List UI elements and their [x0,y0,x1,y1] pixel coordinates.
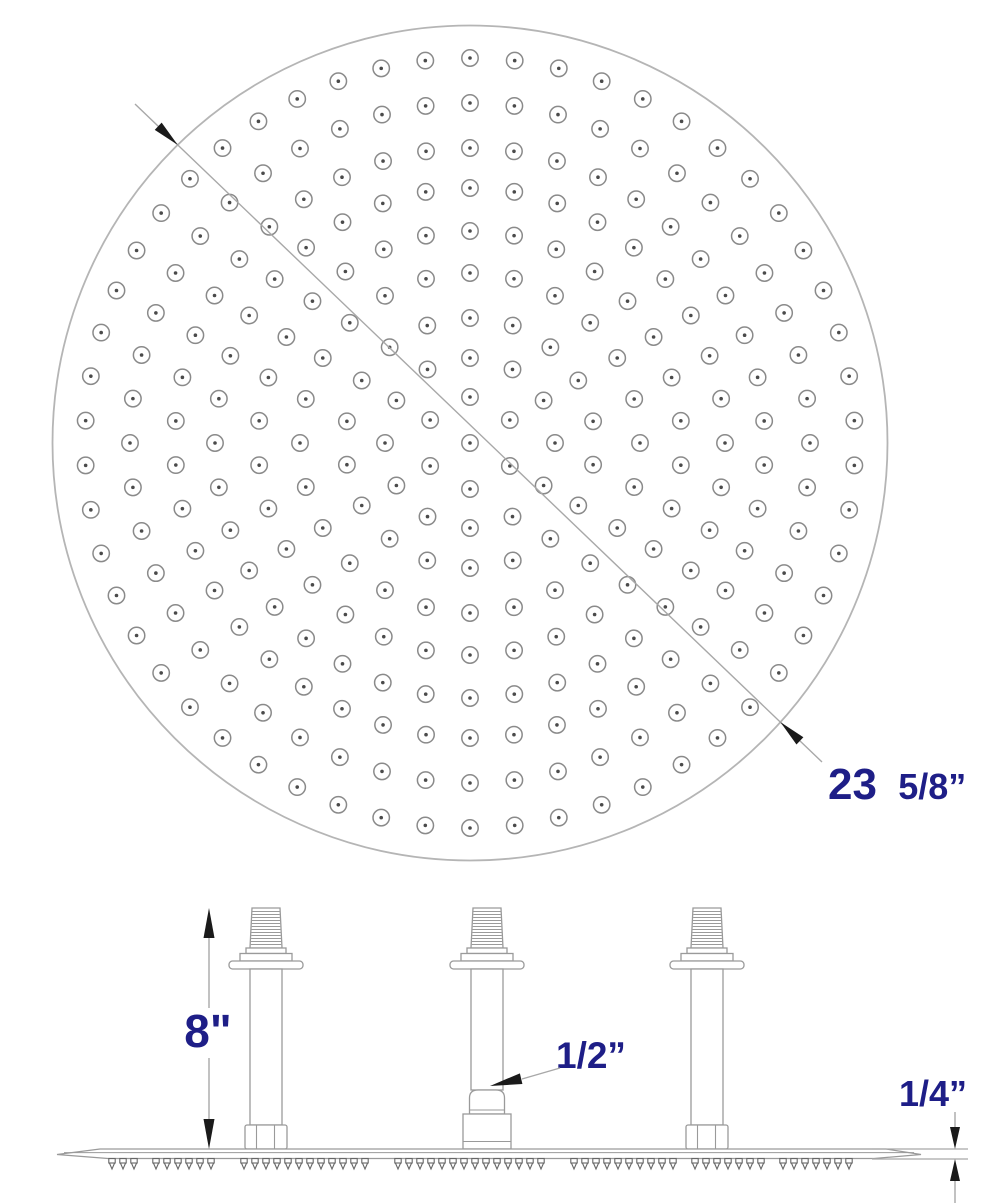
tooth-body [472,1159,478,1164]
nozzle-center-dot [553,588,557,592]
nozzle-center-dot [708,528,712,532]
tooth-body [703,1159,709,1164]
tooth-body [758,1159,764,1164]
tooth-tip [747,1163,752,1169]
nozzle-center-dot [468,101,472,105]
diagram-canvas: 23 5/8” 8" 1/2” 1/4” [0,0,1000,1203]
nozzle-center-dot [596,220,600,224]
nozzle-center-dot [383,588,387,592]
nozzle-center-dot [424,692,428,696]
tooth-tip [164,1163,169,1169]
tooth-body [813,1159,819,1164]
nozzle-center-dot [181,507,185,511]
tooth-tip [758,1163,763,1169]
nozzle-center-dot [426,368,430,372]
nozzle-center-dot [360,379,364,383]
tooth-body [736,1159,742,1164]
nozzle-center-dot [638,147,642,151]
tooth-body [263,1159,269,1164]
nozzle-center-dot [719,485,723,489]
nozzle-center-dot [304,397,308,401]
nozzle-center-dot [762,419,766,423]
tooth-tip [461,1163,466,1169]
tooth-body [329,1159,335,1164]
nozzle-center-dot [154,311,158,315]
tooth-tip [615,1163,620,1169]
tooth-tip [582,1163,587,1169]
tooth-tip [571,1163,576,1169]
nozzle-center-dot [154,571,158,575]
shower-head-face-view: 23 5/8” [53,26,967,861]
nozzle-teeth-row [109,1159,852,1170]
height-arrow-down [204,1119,215,1149]
nozzle-center-dot [140,353,144,357]
nozzle-center-dot [468,487,472,491]
nozzle-center-dot [348,561,352,565]
tooth-body [604,1159,610,1164]
nozzle-center-dot [424,104,428,108]
nozzle-center-dot [638,736,642,740]
nozzle-center-dot [345,419,349,423]
tooth-body [285,1159,291,1164]
tooth-tip [538,1163,543,1169]
nozzle-center-dot [512,692,516,696]
nozzle-center-dot [247,569,251,573]
nozzle-center-dot [679,419,683,423]
tooth-tip [494,1163,499,1169]
tooth-body [802,1159,808,1164]
threaded-nipple [691,908,723,948]
tooth-body [494,1159,500,1164]
diameter-fraction: 5/8” [898,766,966,807]
nozzle-center-dot [468,229,472,233]
nozzle-center-dot [670,507,674,511]
nozzle-center-dot [273,605,277,609]
nozzle-center-dot [135,634,139,638]
nozzle-center-dot [576,504,580,508]
nozzle-center-dot [425,559,429,563]
nozzle-center-dot [89,508,93,512]
tooth-tip [736,1163,741,1169]
nozzle-center-dot [512,733,516,737]
tooth-tip [835,1163,840,1169]
tooth-body [615,1159,621,1164]
nozzle-center-dot [555,159,559,163]
nozzle-center-dot [756,507,760,511]
nozzle-center-dot [228,682,232,686]
tooth-body [780,1159,786,1164]
tooth-body [406,1159,412,1164]
shower-head-side-profile: 8" 1/2” 1/4” [57,908,968,1203]
nozzle-center-dot [853,464,857,468]
nozzle-center-dot [221,736,225,740]
nozzle-center-dot [680,120,684,124]
tooth-tip [362,1163,367,1169]
collar-step-1 [687,948,727,954]
tooth-tip [527,1163,532,1169]
tooth-tip [406,1163,411,1169]
nozzle-center-dot [626,583,630,587]
nozzle-center-dot [424,733,428,737]
nozzle-center-dot [632,397,636,401]
tooth-body [439,1159,445,1164]
nozzle-center-dot [468,271,472,275]
mounting-pipes [229,908,744,1149]
nozzle-center-dot [295,97,299,101]
nozzle-center-dot [298,441,302,445]
nozzle-center-dot [424,824,428,828]
tooth-body [516,1159,522,1164]
tooth-tip [824,1163,829,1169]
nozzle-center-dot [837,552,841,556]
nozzle-center-dot [424,649,428,653]
tooth-body [450,1159,456,1164]
nozzle-center-dot [348,321,352,325]
tooth-tip [351,1163,356,1169]
nozzle-center-dot [344,270,348,274]
tooth-tip [439,1163,444,1169]
nozzle-center-dot [596,662,600,666]
nozzle-center-dot [321,356,325,360]
nozzle-center-dot [213,294,217,298]
tooth-body [483,1159,489,1164]
nozzle-center-dot [338,755,342,759]
nozzle-center-dot [257,120,261,124]
tooth-tip [131,1163,136,1169]
nozzle-center-dot [512,649,516,653]
nozzle-center-dot [428,418,432,422]
diameter-whole: 23 [828,760,877,809]
nozzle-center-dot [512,605,516,609]
tooth-body [307,1159,313,1164]
nozzle-center-dot [381,202,385,206]
nozzle-center-dot [268,657,272,661]
tooth-body [538,1159,544,1164]
nozzle-center-dot [302,685,306,689]
nozzle-center-dot [285,547,289,551]
nozzle-center-dot [596,707,600,711]
nozzle-center-dot [600,79,604,83]
tooth-tip [593,1163,598,1169]
tooth-body [648,1159,654,1164]
nozzle-center-dot [425,324,429,328]
nozzle-center-dot [708,354,712,358]
nozzle-center-dot [593,613,597,617]
tooth-body [241,1159,247,1164]
nozzle-center-dot [802,634,806,638]
nozzle-center-dot [468,356,472,360]
nozzle-center-dot [247,314,251,318]
tooth-body [505,1159,511,1164]
nozzle-center-dot [511,559,515,563]
nozzle-center-dot [174,611,178,615]
nozzle-center-dot [556,770,560,774]
nozzle-center-dot [782,311,786,315]
nozzle-center-dot [295,785,299,789]
nozzle-center-dot [468,736,472,740]
nozzle-center-dot [380,770,384,774]
nozzle-center-dot [669,225,673,229]
nozzle-center-dot [128,441,132,445]
nozzle-center-dot [468,781,472,785]
nozzle-center-dot [468,316,472,320]
nozzle-center-dot [777,211,781,215]
thickness-arrow-up [950,1159,960,1181]
tooth-body [252,1159,258,1164]
tooth-tip [208,1163,213,1169]
nozzle-center-dot [652,335,656,339]
tooth-body [428,1159,434,1164]
nozzle-center-dot [853,419,857,423]
nozzle-center-dot [542,399,546,403]
shower-head-dimension-diagram: 23 5/8” 8" 1/2” 1/4” [0,0,1000,1203]
tooth-body [131,1159,137,1164]
tooth-tip [428,1163,433,1169]
nozzle-center-dot [748,177,752,181]
connector-size-dimension: 1/2” [490,1035,626,1086]
tooth-tip [197,1163,202,1169]
nozzle-center-dot [257,419,261,423]
tooth-tip [252,1163,257,1169]
nozzle-center-dot [99,331,103,335]
nozzle-center-dot [699,257,703,261]
nozzle-center-dot [743,549,747,553]
tooth-tip [417,1163,422,1169]
nozzle-center-dot [181,376,185,380]
tooth-tip [703,1163,708,1169]
nozzle-center-dot [468,696,472,700]
tooth-body [296,1159,302,1164]
nozzle-center-dot [468,146,472,150]
nozzle-center-dot [337,803,341,807]
tooth-body [692,1159,698,1164]
nozzle-center-dot [596,175,600,179]
nozzle-center-dot [338,127,342,131]
nozzle-center-dot [593,270,597,274]
nozzle-center-dot [140,529,144,533]
nozzle-center-dot [424,149,428,153]
nozzle-center-dot [689,314,693,318]
tooth-tip [626,1163,631,1169]
nozzle-center-dot [298,736,302,740]
nozzle-center-dot [261,171,265,175]
tooth-body [351,1159,357,1164]
nozzle-center-dot [159,671,163,675]
nozzle-center-dot [598,755,602,759]
nozzle-center-dot [664,277,668,281]
nozzle-center-dot [424,277,428,281]
tooth-body [582,1159,588,1164]
nozzle-center-dot [664,605,668,609]
nozzle-center-dot [748,705,752,709]
tooth-tip [791,1163,796,1169]
nozzle-center-dot [257,463,261,467]
nozzle-center-dot [513,824,517,828]
nozzle-center-dot [756,376,760,380]
nozzle-center-dot [797,529,801,533]
nozzle-center-dot [304,485,308,489]
nozzle-center-dot [689,569,693,573]
nozzle-center-dot [340,707,344,711]
nozzle-center-dot [174,271,178,275]
nozzle-center-dot [508,418,512,422]
tooth-tip [846,1163,851,1169]
nozzle-center-dot [468,526,472,530]
nozzle-center-dot [556,113,560,117]
nozzle-center-dot [511,368,515,372]
tooth-tip [648,1163,653,1169]
nozzle-center-dot [344,613,348,617]
tooth-tip [802,1163,807,1169]
center-mounting-pipe [450,908,524,1149]
nozzle-center-dot [424,605,428,609]
nozzle-center-dot [468,566,472,570]
nozzle-center-dot [675,171,679,175]
tooth-body [670,1159,676,1164]
tooth-body [318,1159,324,1164]
nozzle-center-dot [555,723,559,727]
tooth-tip [813,1163,818,1169]
tooth-body [274,1159,280,1164]
nozzle-center-dot [159,211,163,215]
nozzle-center-dot [743,333,747,337]
nozzle-center-dot [512,277,516,281]
tooth-body [835,1159,841,1164]
tooth-body [626,1159,632,1164]
tooth-body [362,1159,368,1164]
connector-leader-line [522,1068,560,1079]
nozzle-center-dot [675,711,679,715]
tooth-tip [780,1163,785,1169]
nozzle-center-dot [808,441,812,445]
nozzle-center-dot [426,515,430,519]
tooth-body [153,1159,159,1164]
nozzle-center-dot [709,682,713,686]
nozzle-center-dot [724,589,728,593]
plate-thickness-label: 1/4” [899,1073,967,1114]
nozzle-center-dot [194,549,198,553]
plate-thickness-dimension: 1/4” [872,1073,968,1203]
tooth-body [527,1159,533,1164]
nozzle-center-dot [554,248,558,252]
nozzle-center-dot [84,419,88,423]
nozzle-center-dot [542,484,546,488]
nozzle-center-dot [512,149,516,153]
nozzle-center-dot [188,177,192,181]
nozzle-center-dot [738,234,742,238]
nozzle-center-dot [267,507,271,511]
right-mounting-pipe [670,908,744,1149]
nozzle-center-dot [194,333,198,337]
nozzle-center-dot [345,463,349,467]
tooth-tip [725,1163,730,1169]
nozzle-center-dot [382,248,386,252]
nozzle-center-dot [615,356,619,360]
nozzle-center-dot [615,526,619,530]
tooth-body [197,1159,203,1164]
tooth-tip [505,1163,510,1169]
left-mounting-pipe [229,908,303,1149]
nozzle-center-dot [588,321,592,325]
tooth-tip [395,1163,400,1169]
tooth-tip [659,1163,664,1169]
nozzle-center-dot [805,397,809,401]
nozzle-center-dot [381,723,385,727]
tooth-tip [692,1163,697,1169]
nozzle-center-dot [512,190,516,194]
tooth-body [208,1159,214,1164]
tooth-body [164,1159,170,1164]
tooth-tip [450,1163,455,1169]
tooth-body [725,1159,731,1164]
nozzle-center-dot [135,249,139,253]
tooth-tip [516,1163,521,1169]
tooth-tip [714,1163,719,1169]
nozzle-center-dot [115,289,119,293]
nozzle-center-dot [89,374,93,378]
nozzle-center-dot [424,59,428,63]
nozzle-center-dot [468,441,472,445]
tooth-body [395,1159,401,1164]
nozzle-center-dot [763,271,767,275]
nozzle-center-dot [724,294,728,298]
hex-nut [245,1125,287,1149]
threaded-nipple [471,908,503,948]
drop-pipe [691,969,723,1125]
nozzle-center-dot [511,324,515,328]
nozzle-center-dot [782,571,786,575]
collar-step-1 [246,948,286,954]
nozzle-center-dot [381,681,385,685]
nozzle-center-dot [680,763,684,767]
tooth-tip [483,1163,488,1169]
tooth-tip [120,1163,125,1169]
tooth-tip [263,1163,268,1169]
tooth-body [593,1159,599,1164]
nozzle-center-dot [238,257,242,261]
nozzle-center-dot [699,625,703,629]
nozzle-center-dot [304,637,308,641]
tooth-body [824,1159,830,1164]
nozzle-center-dot [641,97,645,101]
nozzle-center-dot [555,202,559,206]
nozzle-center-dot [381,159,385,163]
thickness-arrow-down [950,1127,960,1149]
diameter-dimension-label: 23 5/8” [828,760,966,809]
nozzle-center-dot [115,594,119,598]
tooth-body [417,1159,423,1164]
nozzle-center-dot [379,67,383,71]
nozzle-center-dot [273,277,277,281]
drop-pipe [471,969,503,1090]
tooth-tip [604,1163,609,1169]
nozzle-center-dot [311,583,315,587]
nozzle-center-dot [513,104,517,108]
tooth-tip [307,1163,312,1169]
plate-outline [57,1149,921,1159]
nozzle-center-dot [588,561,592,565]
tooth-tip [153,1163,158,1169]
tooth-body [461,1159,467,1164]
nozzle-center-dot [379,816,383,820]
nozzle-center-dot [549,537,553,541]
nozzle-center-dot [285,335,289,339]
tooth-body [120,1159,126,1164]
collar-step-1 [467,948,507,954]
nozzle-center-dot [511,515,515,519]
nozzle-center-dot [719,397,723,401]
nozzle-center-dot [257,763,261,767]
